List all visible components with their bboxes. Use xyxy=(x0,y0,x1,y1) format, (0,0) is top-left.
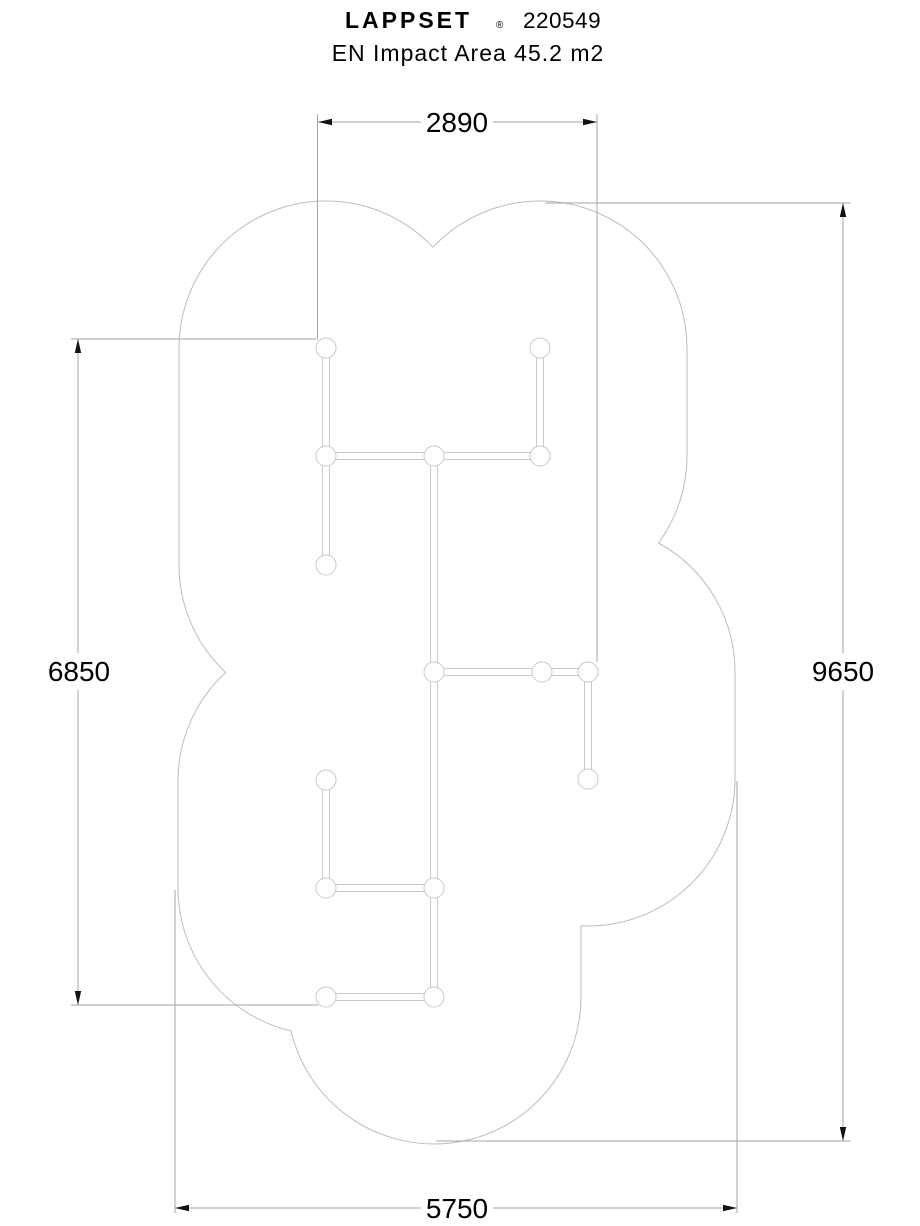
structure-bar xyxy=(323,456,330,565)
structure-post xyxy=(316,770,336,790)
drawing-header: LAPPSET ® 220549 EN Impact Area 45.2 m2 xyxy=(332,7,605,66)
impact-area-drawing-page: LAPPSET ® 220549 EN Impact Area 45.2 m2 xyxy=(0,0,920,1226)
structure-bar xyxy=(326,885,434,892)
product-code: 220549 xyxy=(523,8,601,33)
structure-post xyxy=(530,446,550,466)
structure-post xyxy=(424,987,444,1007)
structure-post xyxy=(578,769,598,789)
registered-trademark-icon: ® xyxy=(496,20,504,31)
structure-post xyxy=(424,446,444,466)
dimension-bottom-value: 5750 xyxy=(426,1193,488,1224)
structure-post xyxy=(316,987,336,1007)
structure-post xyxy=(424,878,444,898)
dimension-left: 6850 xyxy=(48,339,318,1005)
dimension-arrow xyxy=(583,119,597,125)
dimension-arrow xyxy=(723,1205,737,1211)
structure-post xyxy=(316,555,336,575)
structure-post xyxy=(578,662,598,682)
dimension-left-value: 6850 xyxy=(48,656,110,687)
play-structure xyxy=(316,338,598,1007)
impact-area-plan-svg: LAPPSET ® 220549 EN Impact Area 45.2 m2 xyxy=(0,0,920,1226)
dimension-top-value: 2890 xyxy=(426,107,488,138)
dimension-arrow xyxy=(75,991,81,1005)
structure-post xyxy=(532,662,552,682)
dimension-top: 2890 xyxy=(318,107,598,662)
structure-bar xyxy=(323,348,330,456)
structure-bar xyxy=(431,456,438,997)
structure-post xyxy=(424,662,444,682)
dimension-right-value: 9650 xyxy=(812,656,874,687)
dimension-arrow xyxy=(840,203,846,217)
dimension-arrow xyxy=(318,119,332,125)
structure-bar xyxy=(323,780,330,888)
structure-post xyxy=(316,446,336,466)
dimension-arrow xyxy=(840,1127,846,1141)
structure-bar xyxy=(434,669,588,676)
dimension-bottom: 5750 xyxy=(175,781,737,1224)
drawing-subtitle: EN Impact Area 45.2 m2 xyxy=(332,40,605,66)
dimension-arrow xyxy=(175,1205,189,1211)
structure-bar xyxy=(326,994,434,1001)
structure-bar xyxy=(537,348,544,456)
structure-post xyxy=(316,878,336,898)
structure-bar xyxy=(585,672,592,779)
structure-post xyxy=(530,338,550,358)
brand-logo: LAPPSET xyxy=(345,7,472,33)
dimension-arrow xyxy=(75,339,81,353)
structure-post xyxy=(316,338,336,358)
